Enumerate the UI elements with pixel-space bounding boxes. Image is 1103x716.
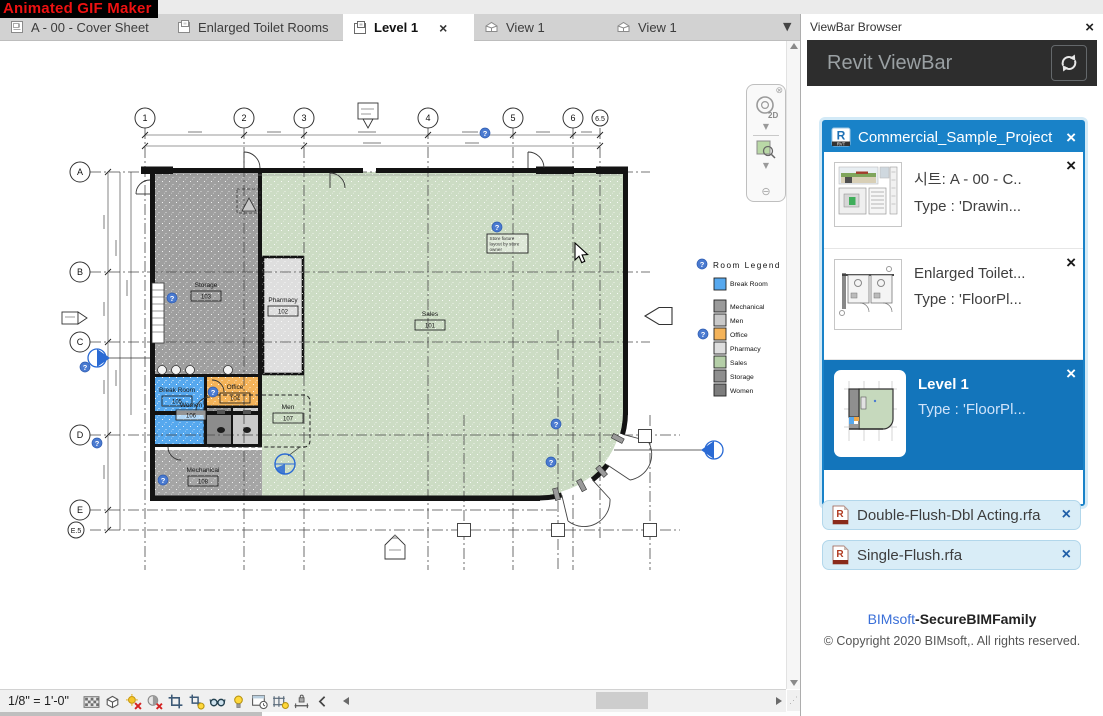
- svg-text:Pharmacy: Pharmacy: [730, 346, 761, 353]
- svg-text:C: C: [77, 337, 84, 347]
- refresh-button[interactable]: [1051, 45, 1087, 81]
- family-name: Double-Flush-Dbl Acting.rfa: [857, 507, 1054, 524]
- view-item-title: Level 1: [918, 376, 1026, 393]
- svg-text:6.5: 6.5: [595, 116, 605, 123]
- svg-text:layout by store: layout by store: [490, 242, 520, 247]
- svg-text:Women: Women: [730, 388, 754, 395]
- svg-text:?: ?: [483, 129, 488, 138]
- view-item-type: Type : 'FloorPl...: [914, 291, 1025, 308]
- temporary-view-properties-icon[interactable]: [251, 693, 268, 710]
- family-item-single-flush[interactable]: R Single-Flush.rfa ×: [822, 540, 1081, 570]
- view-scale[interactable]: 1/8" = 1'-0": [0, 694, 81, 708]
- scroll-up-icon[interactable]: [790, 43, 798, 49]
- navigation-bar[interactable]: ⊗ 2D ▼ ▼ ⊖: [746, 84, 786, 202]
- view-item-title: 시트: A - 00 - C..: [914, 168, 1022, 189]
- reveal-hidden-elements-icon[interactable]: [230, 693, 247, 710]
- tab-label: Level 1: [374, 20, 418, 35]
- floor-plan-svg: 1 2 3 4 5 6 6.5 A B C D E E.5: [0, 40, 786, 689]
- 3d-view-icon: [484, 20, 499, 34]
- zoom-region-icon[interactable]: [754, 138, 778, 160]
- revit-viewbar-header: Revit ViewBar: [807, 40, 1097, 86]
- tab-view-1b[interactable]: View 1: [606, 14, 738, 40]
- gif-maker-overlay: Animated GIF Maker: [0, 0, 158, 18]
- view-thumbnail: [834, 259, 902, 330]
- svg-text:Men: Men: [730, 318, 743, 325]
- svg-text:103: 103: [201, 295, 212, 301]
- canvas-hscrollbar[interactable]: [339, 690, 786, 712]
- rfa-file-icon: R: [832, 545, 849, 565]
- view-item-close-icon[interactable]: ×: [1066, 156, 1076, 176]
- svg-text:B: B: [77, 267, 83, 277]
- tab-view-1a[interactable]: View 1: [474, 14, 606, 40]
- svg-text:Storage: Storage: [730, 374, 754, 381]
- svg-text:108: 108: [198, 480, 209, 486]
- svg-text:4: 4: [425, 113, 430, 123]
- collapse-bar-icon[interactable]: [314, 693, 331, 710]
- wheel-dropdown-icon[interactable]: ▼: [763, 123, 769, 131]
- zoom-dropdown-icon[interactable]: ▼: [763, 162, 769, 170]
- svg-text:?: ?: [700, 260, 705, 269]
- tab-label: View 1: [638, 20, 677, 35]
- room-legend[interactable]: ? Room Legend Break Room Mechanical Men …: [697, 259, 781, 396]
- svg-text:Sales: Sales: [730, 360, 748, 367]
- hscroll-thumb[interactable]: [596, 692, 648, 709]
- family-name: Single-Flush.rfa: [857, 547, 1054, 564]
- view-item-cover-sheet[interactable]: 시트: A - 00 - C.. Type : 'Drawin... ×: [824, 152, 1083, 249]
- crop-view-icon[interactable]: [167, 693, 184, 710]
- resize-grip[interactable]: ⋰: [787, 690, 800, 711]
- view-item-title: Enlarged Toilet...: [914, 265, 1025, 282]
- tab-label: Enlarged Toilet Rooms: [198, 20, 329, 35]
- legend-title: Room Legend: [713, 261, 781, 270]
- canvas-vscrollbar[interactable]: [786, 40, 801, 689]
- tab-enlarged-toilet-rooms[interactable]: Enlarged Toilet Rooms: [167, 14, 343, 40]
- tab-label: View 1: [506, 20, 545, 35]
- svg-text:Office: Office: [730, 332, 748, 339]
- svg-text:owner: owner: [490, 247, 503, 252]
- shadows-icon[interactable]: [146, 693, 163, 710]
- project-close-icon[interactable]: ×: [1066, 129, 1076, 146]
- svg-text:Break Room: Break Room: [730, 281, 768, 288]
- svg-text:?: ?: [95, 439, 100, 448]
- scroll-right-icon[interactable]: [776, 697, 782, 705]
- svg-text:101: 101: [425, 324, 436, 330]
- refresh-icon: [1058, 52, 1080, 74]
- family-close-icon[interactable]: ×: [1062, 546, 1071, 564]
- svg-text:1: 1: [142, 113, 147, 123]
- svg-text:R: R: [836, 549, 844, 560]
- brand-title: Revit ViewBar: [807, 52, 952, 75]
- footer-suffix: -SecureBIMFamily: [915, 611, 1036, 627]
- view-item-type: Type : 'FloorPl...: [918, 401, 1026, 418]
- view-item-close-icon[interactable]: ×: [1066, 364, 1076, 384]
- svg-text:?: ?: [554, 420, 559, 429]
- svg-text:A: A: [77, 167, 83, 177]
- svg-text:Office: Office: [227, 384, 244, 391]
- svg-text:?: ?: [701, 330, 706, 339]
- family-close-icon[interactable]: ×: [1062, 506, 1071, 524]
- svg-text:Pharmacy: Pharmacy: [268, 297, 298, 304]
- tab-overflow-chevron-icon[interactable]: ▼: [783, 20, 791, 33]
- scroll-down-icon[interactable]: [790, 680, 798, 686]
- svg-text:Women: Women: [180, 402, 203, 409]
- show-crop-region-icon[interactable]: [188, 693, 205, 710]
- bimsoft-link[interactable]: BIMsoft: [868, 611, 915, 627]
- detail-level-icon[interactable]: [83, 693, 100, 710]
- svg-text:?: ?: [549, 458, 554, 467]
- panel-close-icon[interactable]: ×: [1085, 19, 1094, 36]
- view-item-enlarged-toilets[interactable]: Enlarged Toilet... Type : 'FloorPl... ×: [824, 249, 1083, 360]
- svg-text:2: 2: [241, 113, 246, 123]
- svg-text:R: R: [836, 509, 844, 520]
- reveal-constraints-icon[interactable]: [293, 693, 310, 710]
- svg-text:5: 5: [510, 113, 515, 123]
- svg-text:Mechanical: Mechanical: [187, 467, 220, 474]
- svg-text:RVT: RVT: [837, 141, 846, 146]
- view-control-bar: 1/8" = 1'-0": [0, 689, 786, 712]
- scroll-left-icon[interactable]: [343, 697, 349, 705]
- project-box: R RVT Commercial_Sample_Project ×: [822, 120, 1085, 506]
- svg-text:D: D: [77, 430, 84, 440]
- footer-copyright: © Copyright 2020 BIMsoft,. All rights re…: [801, 634, 1103, 648]
- sheet-icon: [10, 20, 24, 34]
- view-item-close-icon[interactable]: ×: [1066, 253, 1076, 273]
- steering-wheel-2d-icon[interactable]: 2D: [753, 95, 779, 121]
- svg-text:104: 104: [230, 397, 241, 403]
- revit-project-icon: R RVT: [831, 127, 851, 147]
- svg-text:Storage: Storage: [195, 282, 218, 289]
- navbar-collapse-icon[interactable]: ⊖: [761, 185, 770, 198]
- svg-text:106: 106: [186, 414, 197, 420]
- floor-plan-icon: [177, 20, 191, 34]
- svg-text:6: 6: [570, 113, 575, 123]
- sun-path-icon[interactable]: [125, 693, 142, 710]
- visual-style-icon[interactable]: [104, 693, 121, 710]
- svg-text:?: ?: [83, 363, 88, 372]
- svg-text:?: ?: [161, 476, 166, 485]
- svg-text:E.5: E.5: [71, 528, 82, 535]
- svg-text:?: ?: [170, 294, 175, 303]
- project-header[interactable]: R RVT Commercial_Sample_Project ×: [824, 122, 1083, 152]
- svg-text:Store fixture: Store fixture: [490, 236, 515, 241]
- panel-footer: BIMsoft-SecureBIMFamily © Copyright 2020…: [801, 611, 1103, 648]
- svg-text:107: 107: [283, 417, 294, 423]
- navbar-close-icon[interactable]: ⊗: [775, 86, 783, 95]
- svg-text:?: ?: [211, 388, 216, 397]
- svg-text:Break Room: Break Room: [159, 387, 195, 394]
- view-item-level-1[interactable]: Level 1 Type : 'FloorPl... ×: [824, 360, 1083, 470]
- svg-text:?: ?: [495, 223, 500, 232]
- room-fills[interactable]: [152, 172, 623, 497]
- viewbar-browser-panel: ViewBar Browser × Revit ViewBar R: [800, 14, 1103, 716]
- 3d-view-icon: [616, 20, 631, 34]
- svg-text:E: E: [77, 505, 83, 515]
- temporary-hide-isolate-icon[interactable]: [209, 693, 226, 710]
- project-name: Commercial_Sample_Project: [858, 129, 1059, 146]
- revit-window: Animated GIF Maker A - 00 - Cover Sheet …: [0, 0, 1103, 716]
- panel-title: ViewBar Browser: [810, 20, 902, 34]
- svg-text:Mechanical: Mechanical: [730, 304, 765, 311]
- svg-text:3: 3: [301, 113, 306, 123]
- view-thumbnail: [834, 370, 906, 457]
- view-tab-bar: A - 00 - Cover Sheet Enlarged Toilet Roo…: [0, 14, 800, 41]
- svg-text:2D: 2D: [768, 111, 778, 120]
- svg-text:R: R: [837, 129, 846, 143]
- drawing-canvas[interactable]: 1 2 3 4 5 6 6.5 A B C D E E.5: [0, 40, 786, 689]
- rfa-file-icon: R: [832, 505, 849, 525]
- svg-text:Sales: Sales: [422, 311, 439, 318]
- svg-text:Men: Men: [282, 404, 295, 411]
- tab-level-1[interactable]: Level 1 ×: [343, 14, 474, 41]
- title-strip: [0, 0, 1103, 14]
- text-note[interactable]: Store fixture layout by store owner: [487, 234, 528, 253]
- view-item-type: Type : 'Drawin...: [914, 198, 1022, 215]
- hscroll-track[interactable]: [353, 690, 772, 712]
- floor-plan-icon: [353, 21, 367, 35]
- svg-text:102: 102: [278, 310, 289, 316]
- hide-analytical-model-icon[interactable]: [272, 693, 289, 710]
- tab-label: A - 00 - Cover Sheet: [31, 20, 149, 35]
- view-thumbnail: [834, 162, 902, 227]
- close-tab-icon[interactable]: ×: [439, 20, 447, 36]
- family-item-double-flush[interactable]: R Double-Flush-Dbl Acting.rfa ×: [822, 500, 1081, 530]
